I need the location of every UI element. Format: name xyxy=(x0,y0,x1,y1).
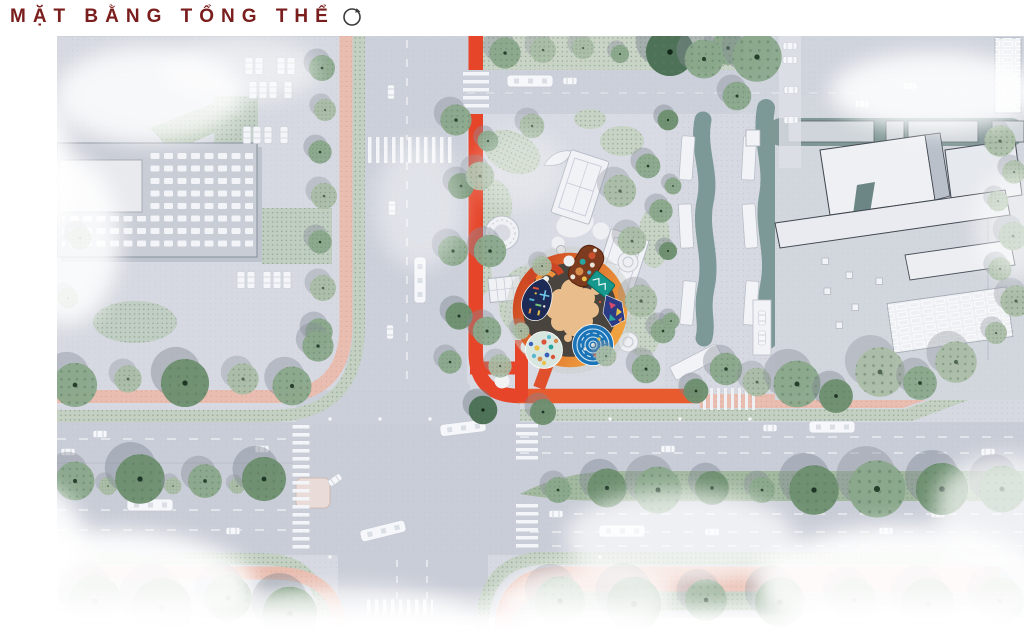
ring-entry-node xyxy=(564,256,575,267)
car xyxy=(763,425,777,432)
bus xyxy=(809,421,855,433)
page-header: MẶT BẰNG TỔNG THỂ xyxy=(10,5,364,28)
car xyxy=(226,528,240,535)
site-plan xyxy=(0,0,1024,631)
car xyxy=(93,431,107,438)
car xyxy=(783,43,797,50)
car xyxy=(247,272,255,289)
compass-icon xyxy=(341,5,364,28)
car xyxy=(263,272,271,289)
car xyxy=(243,127,251,144)
car xyxy=(237,272,245,289)
bottom-fade xyxy=(0,585,1024,631)
car xyxy=(563,78,577,85)
service-pavilion xyxy=(753,300,771,355)
car xyxy=(387,325,394,339)
confetti-court xyxy=(526,332,563,369)
car xyxy=(549,511,563,518)
car xyxy=(759,311,766,325)
car xyxy=(783,57,797,64)
car xyxy=(273,272,281,289)
bus xyxy=(507,75,553,87)
pond xyxy=(593,223,610,240)
car xyxy=(661,446,675,453)
car xyxy=(280,127,288,144)
car xyxy=(283,272,291,289)
page-title: MẶT BẰNG TỔNG THỂ xyxy=(10,6,335,28)
green-swale xyxy=(702,120,708,338)
left-margin xyxy=(0,0,57,631)
kiosk xyxy=(746,130,760,146)
car xyxy=(759,331,766,345)
car xyxy=(253,127,261,144)
master-plan-page: MẶT BẰNG TỔNG THỂ xyxy=(0,0,1024,631)
car xyxy=(264,127,272,144)
car xyxy=(784,87,798,94)
car xyxy=(784,117,798,124)
car xyxy=(388,85,395,99)
